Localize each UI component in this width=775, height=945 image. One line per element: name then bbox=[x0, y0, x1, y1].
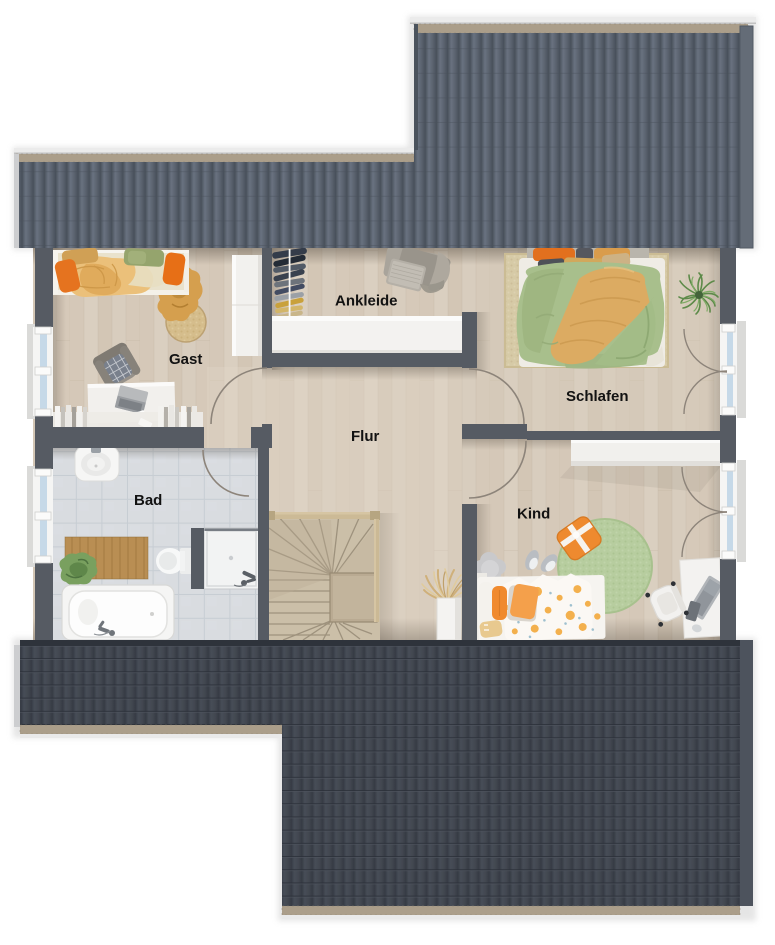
svg-text:Schlafen: Schlafen bbox=[566, 388, 629, 405]
svg-text:Ankleide: Ankleide bbox=[335, 293, 398, 310]
svg-text:Gast: Gast bbox=[169, 351, 202, 368]
svg-text:Bad: Bad bbox=[134, 492, 162, 509]
svg-text:Kind: Kind bbox=[517, 506, 550, 523]
svg-text:Flur: Flur bbox=[351, 428, 379, 445]
